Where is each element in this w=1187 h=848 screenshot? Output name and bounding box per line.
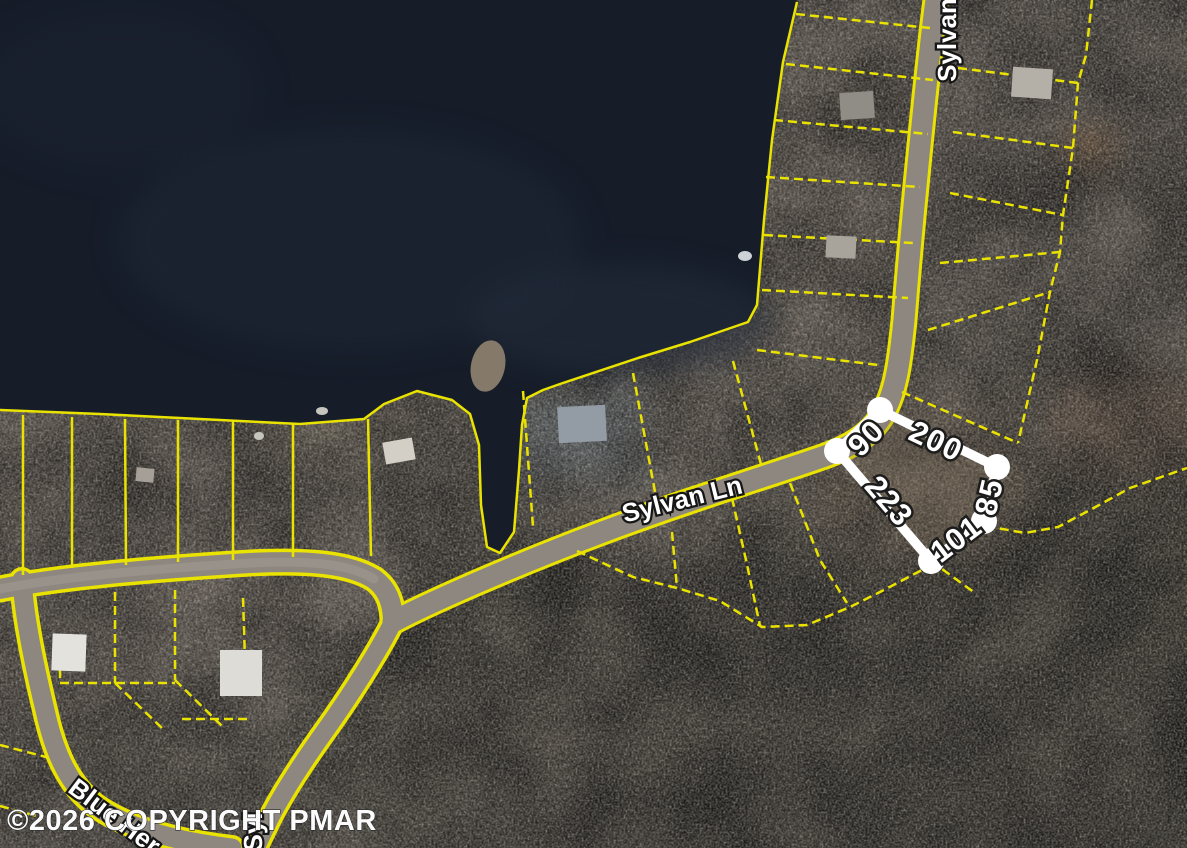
building xyxy=(51,633,86,671)
parcel-line xyxy=(125,419,126,565)
dock xyxy=(316,407,328,415)
map-image: 90 200 223 85 101 Sylvan Ln Sylvan Syl B… xyxy=(0,0,1187,848)
dock xyxy=(254,432,264,440)
building xyxy=(839,91,875,120)
water-shade xyxy=(470,265,770,375)
boat xyxy=(738,251,752,261)
building xyxy=(220,650,262,696)
street-label-sylvan-north: Sylvan xyxy=(932,0,962,82)
building xyxy=(825,235,856,259)
copyright-text: ©2026 COPYRIGHT PMAR xyxy=(7,805,377,837)
aerial-parcel-map: 90 200 223 85 101 Sylvan Ln Sylvan Syl B… xyxy=(0,0,1187,848)
building xyxy=(135,467,154,483)
building xyxy=(557,405,607,443)
building xyxy=(1011,67,1053,100)
lot-corner-marker xyxy=(984,454,1010,480)
